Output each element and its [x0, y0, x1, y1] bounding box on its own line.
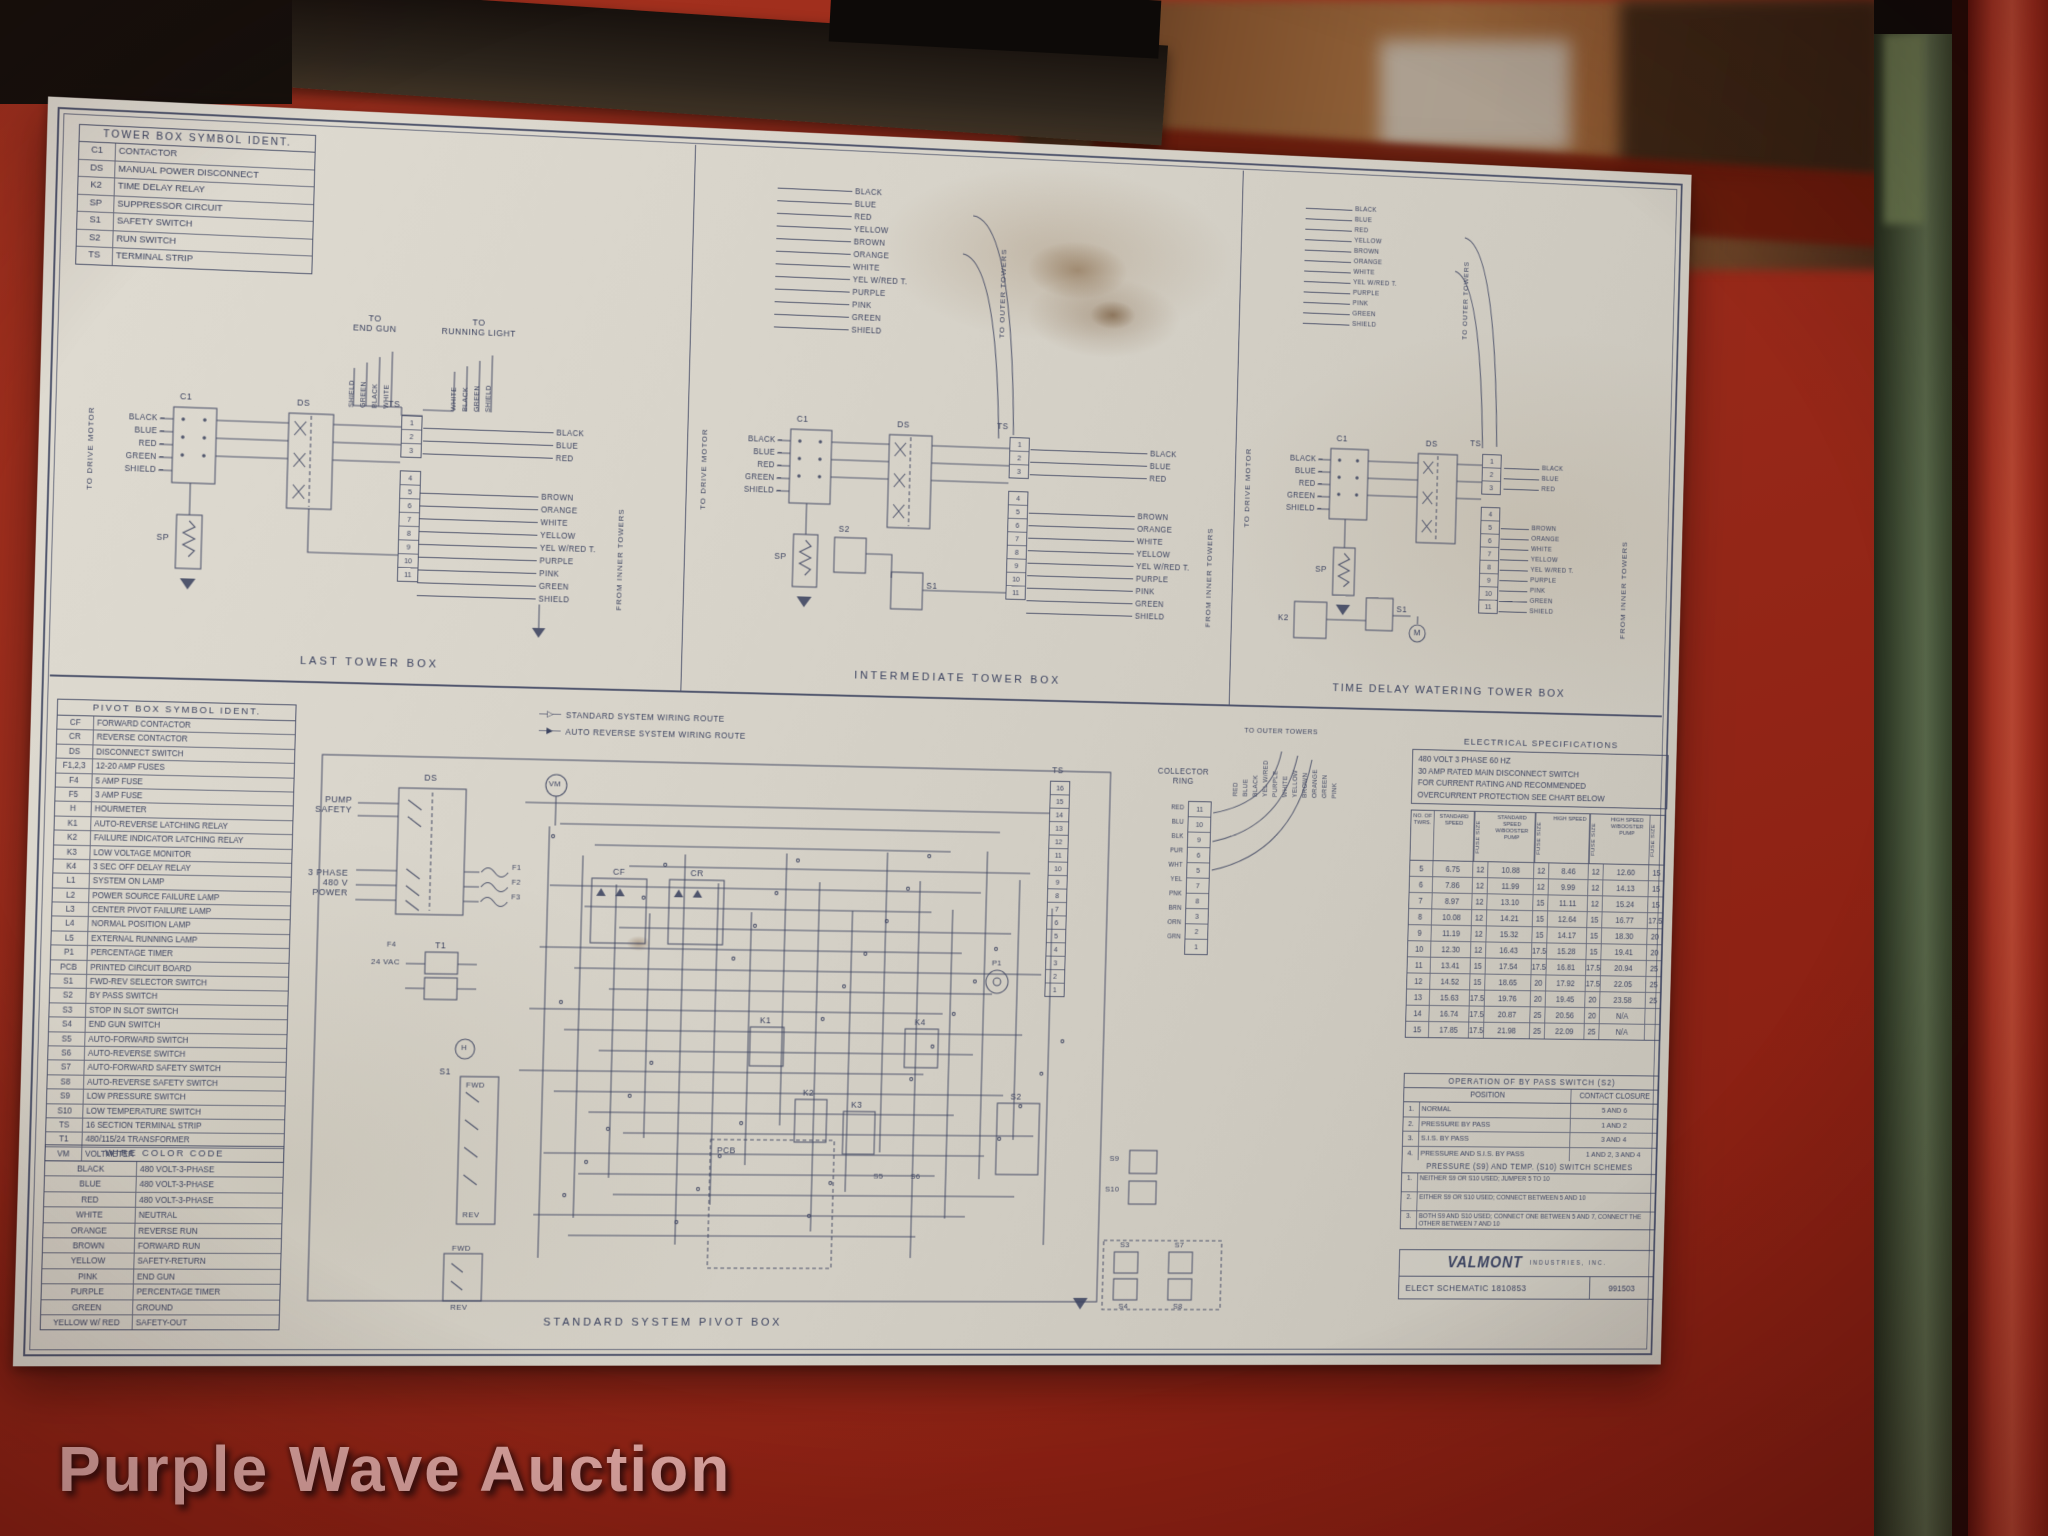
table-row: RED480 VOLT-3-PHASE — [44, 1192, 282, 1209]
table-cell: 14 — [1406, 1006, 1430, 1021]
drive-motor-wire-list: BLACKBLUEREDGREENSHIELD — [723, 432, 775, 497]
table-row: 3.BOTH S9 AND S10 USED; CONNECT ONE BETW… — [1401, 1211, 1655, 1230]
table-cell: AUTO-REVERSE SAFETY SWITCH — [84, 1075, 285, 1090]
table-cell: 17.5 — [1470, 990, 1485, 1005]
tower-wire-list: BROWNORANGEWHITEYELLOWYEL W/RED T.PURPLE… — [538, 491, 597, 607]
table-cell: 17.5 — [1469, 1006, 1484, 1021]
component-label-s10: S10 — [1105, 1185, 1120, 1194]
table-cell: 16.81 — [1546, 959, 1586, 975]
list-item: 7 — [1008, 532, 1027, 546]
table-cell: 17.5 — [1648, 913, 1663, 928]
selector-rev-label: REV — [462, 1210, 479, 1219]
table-row: 4.PRESSURE AND S.I.S. BY PASS1 AND 2, 3 … — [1402, 1147, 1656, 1163]
list-item: YEL — [1144, 872, 1183, 887]
component-label-f4: F4 — [387, 940, 397, 949]
list-item: 3 — [1186, 909, 1208, 925]
terminal-strip-bottom: 4567891011 — [1478, 507, 1500, 614]
list-item: RED — [1146, 800, 1185, 815]
table-cell: 6.75 — [1433, 861, 1473, 877]
table-cell: 17.85 — [1429, 1022, 1469, 1038]
list-item: ORN — [1143, 915, 1182, 930]
table-cell: K2 — [78, 177, 115, 195]
table-cell: 8 — [1409, 909, 1433, 925]
component-label-h: H — [461, 1043, 467, 1052]
terminal-strip-bottom: 4567891011 — [1005, 491, 1028, 600]
table-cell: PCB — [51, 960, 88, 974]
table-cell: 16 SECTION TERMINAL STRIP — [83, 1119, 284, 1134]
table-cell: S10 — [47, 1104, 84, 1118]
table-cell: 1 AND 2 — [1570, 1119, 1658, 1133]
list-item: 10 — [1188, 817, 1210, 833]
table-cell: SAFETY-OUT — [133, 1315, 279, 1329]
table-cell: FWD-REV SELECTOR SWITCH — [87, 975, 288, 991]
table-cell: S7 — [48, 1061, 85, 1075]
table-cell: 15 — [1587, 928, 1602, 943]
table-cell: 16.74 — [1429, 1006, 1469, 1022]
component-label-sp: SP — [1315, 564, 1327, 574]
table-cell: 1. — [1402, 1174, 1418, 1192]
list-item: BLACK — [371, 355, 382, 409]
list-item: BROWN — [1301, 741, 1311, 798]
table-cell: S3 — [49, 1003, 86, 1017]
table-row: YELLOW W/ REDSAFETY-OUT — [41, 1315, 279, 1329]
three-phase-power-label: 3 PHASE 480 V POWER — [291, 867, 348, 898]
list-item: 13 — [1050, 822, 1069, 836]
list-item: WHITE — [382, 355, 393, 409]
list-item: PUR — [1145, 843, 1184, 858]
component-label-sp: SP — [774, 551, 786, 561]
table-cell: 12 — [1407, 973, 1431, 988]
table-row: BROWNFORWARD RUN — [43, 1238, 281, 1254]
table-cell: 18.65 — [1485, 975, 1531, 991]
right-specifications-column: ELECTRICAL SPECIFICATIONS 480 VOLT 3 PHA… — [1396, 736, 1669, 1361]
list-item: SHIELD — [538, 593, 594, 607]
table-cell: DS — [57, 744, 94, 758]
component-label-sp: SP — [156, 532, 169, 542]
list-item: BLUE — [1542, 474, 1564, 485]
table-cell: DS — [79, 159, 116, 177]
list-item: PURPLE — [1271, 740, 1282, 797]
list-item: 5 — [1047, 930, 1066, 944]
table-cell: F1,2,3 — [56, 759, 93, 773]
component-label-s4: S4 — [1118, 1302, 1128, 1311]
list-item: 8 — [1480, 561, 1498, 575]
table-cell: 3. — [1401, 1211, 1417, 1229]
list-item: 11 — [1479, 600, 1497, 613]
list-item: 3 — [1010, 465, 1029, 478]
table-cell: 9.99 — [1549, 879, 1589, 895]
table-cell: 12.30 — [1431, 942, 1471, 958]
component-label-pcb: PCB — [717, 1145, 736, 1155]
list-item: 6 — [1008, 519, 1027, 533]
table-cell: S.I.S. BY PASS — [1419, 1132, 1570, 1147]
table-cell: 19.45 — [1546, 991, 1586, 1007]
table-cell: CR — [57, 730, 94, 744]
table-cell: 14.52 — [1430, 974, 1470, 990]
purple-wave-auction-watermark: Purple Wave Auction — [58, 1432, 731, 1506]
end-gun-wires: SHIELDGREENBLACKWHITE — [347, 354, 393, 409]
component-label-s8: S8 — [1173, 1302, 1183, 1311]
component-label-f1: F1 — [512, 863, 522, 872]
component-label-k2: K2 — [1278, 612, 1289, 622]
table-cell: P1 — [51, 946, 88, 960]
list-item: 4 — [1046, 943, 1065, 957]
table-cell: ORANGE — [43, 1223, 135, 1238]
drive-motor-wire-list: BLACKBLUEREDGREENSHIELD — [103, 409, 158, 476]
component-label-m: M — [1414, 628, 1421, 638]
list-item: 12 — [1049, 835, 1068, 849]
table-cell: AUTO-FORWARD SWITCH — [85, 1032, 286, 1048]
list-item: 7 — [1480, 547, 1498, 561]
list-item: 7 — [1187, 878, 1209, 894]
component-label-cf: CF — [613, 867, 626, 877]
column-header: FUSE SIZE — [1589, 814, 1605, 863]
table-cell: BROWN — [43, 1238, 135, 1253]
terminal-strip-top: 123 — [1009, 437, 1030, 479]
table-cell: 25 — [1646, 993, 1661, 1008]
collector-wire-abbreviations: REDBLUBLKPURWHTYELPNKBRNORNGRN — [1143, 800, 1185, 944]
standard-system-pivot-box-diagram: —▷— STANDARD SYSTEM WIRING ROUTE —▶— AUT… — [279, 703, 1406, 1349]
component-label-cr: CR — [690, 868, 703, 878]
list-item: WHITE — [1281, 740, 1291, 797]
list-item: SHIELD — [347, 354, 358, 408]
table-cell: 13 — [1407, 989, 1431, 1004]
table-cell: BLUE — [45, 1177, 137, 1192]
table-cell: 15 — [1533, 911, 1548, 926]
chart-body: 56.751210.88128.461212.601567.861211.991… — [1406, 861, 1664, 1040]
to-end-gun-label: TO END GUN — [340, 312, 410, 334]
list-item: BLACK — [461, 358, 472, 411]
table-cell: RED — [44, 1192, 136, 1207]
component-label-ds: DS — [297, 398, 310, 408]
table-cell: NEITHER S9 OR S10 USED; JUMPER 5 TO 10 — [1418, 1174, 1656, 1193]
table-cell: 17.5 — [1469, 1023, 1484, 1038]
component-label-k2: K2 — [803, 1088, 814, 1098]
list-item: 7 — [1047, 903, 1066, 917]
outer-towers-wire-list: BLACKBLUEREDYELLOWBROWNORANGEWHITEYEL W/… — [851, 185, 910, 338]
table-cell: K3 — [54, 845, 91, 859]
table-cell: 15 — [1470, 974, 1485, 989]
list-item: 2 — [1482, 468, 1500, 482]
table-cell: 17.5 — [1532, 943, 1547, 958]
table-cell: 12 — [1588, 896, 1603, 911]
table-cell: 12 — [1588, 864, 1603, 879]
list-item: 6 — [1187, 848, 1209, 864]
list-item: 9 — [1188, 832, 1210, 848]
wire-color-code-table: WIRE COLOR CODE BLACK480 VOLT-3-PHASEBLU… — [40, 1144, 285, 1330]
bypass-switch-table: OPERATION OF BY PASS SWITCH (S2) POSITIO… — [1400, 1073, 1660, 1231]
column-header: FUSE SIZE — [1649, 816, 1665, 865]
valmont-logo: VALMONT — [1447, 1255, 1523, 1272]
column-header: FUSE SIZE — [1534, 813, 1550, 862]
list-item: GREEN — [1321, 741, 1331, 798]
table-cell: L2 — [53, 888, 90, 902]
list-item: 9 — [1048, 876, 1067, 890]
table-cell: GREEN — [41, 1300, 133, 1314]
list-item: SHIELD — [103, 461, 157, 476]
list-item: GRN — [1143, 929, 1182, 944]
list-item: 6 — [1481, 534, 1499, 548]
table-cell: 12 — [1534, 879, 1549, 894]
green-pipe-highlight — [1884, 34, 1924, 224]
table-cell: 2. — [1401, 1192, 1417, 1210]
table-cell: 19.76 — [1485, 991, 1531, 1007]
list-item: 1 — [1483, 455, 1501, 469]
column-header: HIGH SPEED — [1549, 813, 1590, 863]
table-cell: 12 — [1534, 863, 1549, 878]
list-item: 6 — [1047, 916, 1066, 930]
table-cell: PRESSURE AND S.I.S. BY PASS — [1419, 1147, 1570, 1162]
list-item: 8 — [399, 526, 419, 540]
schematic-paper: TOWER BOX SYMBOL IDENT. C1CONTACTORDSMAN… — [13, 96, 1692, 1366]
table-cell: 15 — [1587, 912, 1602, 927]
list-item: 3 — [401, 444, 421, 457]
component-label-ds: DS — [424, 773, 437, 783]
component-label-s9: S9 — [1109, 1154, 1119, 1163]
component-label-s1: S1 — [926, 581, 937, 591]
table-cell: 17.5 — [1586, 960, 1601, 975]
table-cell: 480 VOLT-3-PHASE — [136, 1193, 282, 1208]
list-item: SHIELD — [1529, 606, 1572, 618]
collector-ring-strip: 111096578321 — [1184, 801, 1212, 955]
table-cell: 20 — [1531, 975, 1546, 990]
component-label-s1: S1 — [1396, 604, 1407, 614]
table-cell: 22.05 — [1600, 976, 1646, 992]
intermediate-tower-box-panel: TO DRIVE MOTOR BLACKBLUEREDGREENSHIELD C… — [680, 145, 1243, 705]
table-cell: 12.64 — [1548, 911, 1588, 927]
table-row: PURPLEPERCENTAGE TIMER — [42, 1284, 280, 1300]
list-item: RED — [1149, 473, 1176, 486]
component-label-f3: F3 — [511, 892, 521, 901]
table-cell: 12 — [1471, 926, 1486, 941]
list-item: SHIELD — [484, 359, 495, 412]
table-cell: 20.94 — [1601, 960, 1647, 976]
list-item: 8 — [1007, 546, 1026, 560]
table-cell: 25 — [1646, 961, 1661, 976]
table-cell: PINK — [42, 1269, 134, 1284]
table-cell: 9 — [1408, 925, 1432, 941]
list-item: WHITE — [450, 358, 461, 411]
table-row: YELLOWSAFETY-RETURN — [42, 1254, 280, 1270]
list-item: BLU — [1146, 814, 1185, 829]
table-cell: S4 — [49, 1018, 86, 1032]
table-cell: 12 — [1588, 880, 1603, 895]
column-header: NO. OF TWRS. — [1410, 810, 1434, 860]
component-label-f2: F2 — [512, 878, 522, 887]
list-item: YEL W/RED — [1262, 740, 1273, 797]
component-label-ds: DS — [897, 419, 910, 429]
table-cell: H — [55, 802, 92, 816]
list-item: 7 — [399, 513, 419, 527]
document-row: ELECT SCHEMATIC 1810853 991503 — [1399, 1277, 1654, 1299]
list-item: BLACK — [556, 427, 584, 441]
table-cell: LOW TEMPERATURE SWITCH — [83, 1104, 284, 1119]
speed-fuse-chart: NO. OF TWRS. STANDARD SPEED FUSE SIZE ST… — [1405, 810, 1666, 1041]
document-code: 991503 — [1590, 1277, 1654, 1299]
component-label-c1: C1 — [180, 391, 193, 401]
table-cell: YELLOW W/ RED — [41, 1315, 133, 1329]
terminal-strip-top: 123 — [1481, 454, 1502, 495]
pivot-band: PIVOT BOX SYMBOL IDENT. CFFORWARD CONTAC… — [31, 674, 1662, 1348]
table-cell: 7 — [1409, 893, 1433, 909]
table-cell: 21.98 — [1484, 1023, 1530, 1039]
table-cell: 10.08 — [1432, 909, 1472, 925]
list-item: BLACK — [1150, 448, 1177, 461]
table-cell: 15.32 — [1486, 926, 1532, 942]
list-item: 16 — [1051, 782, 1070, 796]
table-cell: 8.46 — [1549, 863, 1589, 879]
table-cell: S5 — [49, 1032, 86, 1046]
table-cell: 10 — [1408, 941, 1432, 957]
schematic-border: TOWER BOX SYMBOL IDENT. C1CONTACTORDSMAN… — [23, 107, 1683, 1356]
table-cell: 14.21 — [1487, 910, 1533, 926]
table-cell: 15 — [1470, 958, 1485, 973]
terminal-strip-bottom: 4567891011 — [397, 470, 421, 582]
list-item: 15 — [1050, 795, 1069, 809]
pump-safety-label: PUMP SAFETY — [296, 794, 353, 815]
list-item: 2 — [402, 430, 422, 444]
table-cell: 2. — [1403, 1117, 1419, 1131]
table-cell: BY PASS SWITCH — [86, 989, 287, 1005]
component-label-24vac: 24 VAC — [371, 957, 400, 966]
list-item: BLUE — [1150, 460, 1177, 473]
pivot-wiring-drawing — [279, 703, 1406, 1349]
table-cell: F4 — [56, 773, 93, 787]
list-item: 4 — [1481, 508, 1499, 522]
table-cell: 3 AND 4 — [1569, 1133, 1657, 1147]
list-item: 10 — [1007, 573, 1026, 587]
list-item: 1 — [402, 416, 422, 430]
table-cell: 25 — [1530, 1023, 1545, 1038]
list-item: 3 — [1046, 957, 1065, 971]
list-item: 2 — [1010, 451, 1029, 465]
table-cell: SAFETY-RETURN — [134, 1254, 280, 1269]
list-item: 5 — [1187, 863, 1209, 879]
column-header: STANDARD SPEED W/BOOSTER PUMP — [1488, 812, 1535, 862]
table-cell: AUTO-FORWARD SAFETY SWITCH — [84, 1061, 285, 1076]
component-label-ts: TS — [997, 421, 1009, 431]
table-cell: 8.97 — [1432, 893, 1472, 909]
table-cell — [1645, 1009, 1660, 1024]
table-cell: YELLOW — [42, 1254, 134, 1269]
component-label-t1: T1 — [435, 940, 446, 950]
table-row: PINKEND GUN — [42, 1269, 280, 1285]
table-cell: 17.54 — [1486, 958, 1532, 974]
table-cell: 14.17 — [1547, 927, 1587, 943]
list-item: PINK — [1331, 741, 1341, 798]
table-cell: EITHER S9 OR S10 USED; CONNECT BETWEEN 5… — [1417, 1192, 1655, 1211]
list-item: PNK — [1144, 886, 1183, 901]
list-item: 1 — [1185, 940, 1207, 955]
background-concrete-blur — [1380, 40, 1570, 150]
terminal-strip-top: 123 — [400, 415, 422, 458]
component-label-s2: S2 — [838, 524, 849, 534]
table-cell: AUTO-REVERSE SWITCH — [85, 1047, 286, 1063]
tower-box-symbol-table: TOWER BOX SYMBOL IDENT. C1CONTACTORDSMAN… — [75, 124, 316, 274]
table-body: BLACK480 VOLT-3-PHASEBLUE480 VOLT-3-PHAS… — [41, 1161, 283, 1329]
list-item: ORANGE — [1311, 741, 1321, 798]
table-cell: FORWARD RUN — [135, 1239, 281, 1254]
table-row: 1.NEITHER S9 OR S10 USED; JUMPER 5 TO 10 — [1402, 1174, 1656, 1194]
phase-wire-list: BLACKBLUERED — [1541, 464, 1563, 496]
running-light-wires: WHITEBLACKGREENSHIELD — [450, 358, 496, 413]
list-item: RED — [1232, 739, 1243, 796]
table-cell: S2 — [77, 229, 114, 247]
table-row: GREENGROUND — [41, 1300, 279, 1316]
outer-towers-wires: REDBLUEBLACKYEL W/REDPURPLEWHITEYELLOWBR… — [1232, 739, 1341, 799]
panel-groove — [1952, 0, 1968, 1536]
list-item: 9 — [399, 540, 419, 554]
table-cell: 15.28 — [1547, 943, 1587, 959]
table-cell: 15 — [1532, 927, 1547, 942]
table-cell: 25 — [1530, 1007, 1545, 1022]
table-cell: 20 — [1585, 1008, 1600, 1023]
table-cell: 3. — [1403, 1132, 1419, 1146]
table-cell: 19.41 — [1601, 944, 1647, 960]
table-cell: 18.30 — [1602, 928, 1648, 944]
table-cell: 12.60 — [1603, 864, 1649, 880]
tower-diagrams-band: TOWER BOX SYMBOL IDENT. C1CONTACTORDSMAN… — [50, 115, 1676, 717]
list-item: 5 — [400, 485, 420, 499]
list-item: 3 — [1482, 481, 1500, 494]
table-cell: LOW PRESSURE SWITCH — [84, 1090, 285, 1105]
table-cell: PRESSURE BY PASS — [1419, 1117, 1570, 1132]
table-cell: SP — [78, 194, 115, 212]
tower-wire-list: BROWNORANGEWHITEYELLOWYEL W/RED T.PURPLE… — [1135, 511, 1191, 625]
list-item: 1 — [1010, 438, 1029, 452]
outer-towers-wire-list: BLACKBLUEREDYELLOWBROWNORANGEWHITEYEL W/… — [1352, 204, 1399, 331]
component-label-k3: K3 — [851, 1100, 862, 1110]
table-cell: 20 — [1531, 991, 1546, 1006]
list-item: SHIELD — [1135, 610, 1189, 624]
table-row: 2.EITHER S9 OR S10 USED; CONNECT BETWEEN… — [1401, 1192, 1655, 1212]
selector-fwd-label: FWD — [466, 1081, 485, 1090]
table-cell: 15 — [1648, 881, 1663, 896]
column-header: POSITION — [1404, 1088, 1571, 1103]
table-body: C1CONTACTORDSMANUAL POWER DISCONNECTK2TI… — [76, 142, 314, 273]
table-cell: CF — [57, 716, 94, 730]
list-item: 11 — [1006, 586, 1025, 599]
table-cell: 20 — [1647, 945, 1662, 960]
table-cell: TS — [46, 1118, 83, 1132]
table-cell: END GUN SWITCH — [86, 1018, 287, 1034]
table-cell: 22.09 — [1545, 1023, 1585, 1039]
table-cell: L3 — [52, 903, 89, 917]
list-item: 8 — [1048, 889, 1067, 903]
table-cell: 15.63 — [1430, 990, 1470, 1006]
document-number: ELECT SCHEMATIC 1810853 — [1399, 1277, 1591, 1299]
table-cell: L5 — [51, 931, 88, 945]
brand-suffix: INDUSTRIES, INC. — [1530, 1260, 1607, 1267]
table-cell: F5 — [55, 787, 92, 801]
table-title: WIRE COLOR CODE — [45, 1145, 283, 1163]
table-cell: S1 — [50, 974, 87, 988]
column-header: CONTACT CLOSURE — [1570, 1090, 1658, 1104]
table-cell: BOTH S9 AND S10 USED; CONNECT ONE BETWEE… — [1417, 1211, 1655, 1230]
table-cell: 11 — [1407, 957, 1431, 972]
tower-wire-list: BROWNORANGEWHITEYELLOWYEL W/RED T.PURPLE… — [1529, 524, 1575, 619]
list-item: SHIELD — [851, 324, 906, 339]
photo-scene: TOWER BOX SYMBOL IDENT. C1CONTACTORDSMAN… — [0, 0, 2048, 1536]
pivot-box-symbol-table: PIVOT BOX SYMBOL IDENT. CFFORWARD CONTAC… — [44, 699, 296, 1163]
list-item: 5 — [1008, 505, 1027, 519]
list-item: GREEN — [473, 359, 484, 412]
electrical-specifications-notes: 480 VOLT 3 PHASE 60 HZ30 AMP RATED MAIN … — [1411, 749, 1669, 809]
table-cell: 20 — [1647, 929, 1662, 944]
table-row: BLACK480 VOLT-3-PHASE — [45, 1161, 283, 1178]
background-shadow-blob — [1620, 0, 1880, 180]
selector-rev2-label: REV — [450, 1303, 467, 1312]
